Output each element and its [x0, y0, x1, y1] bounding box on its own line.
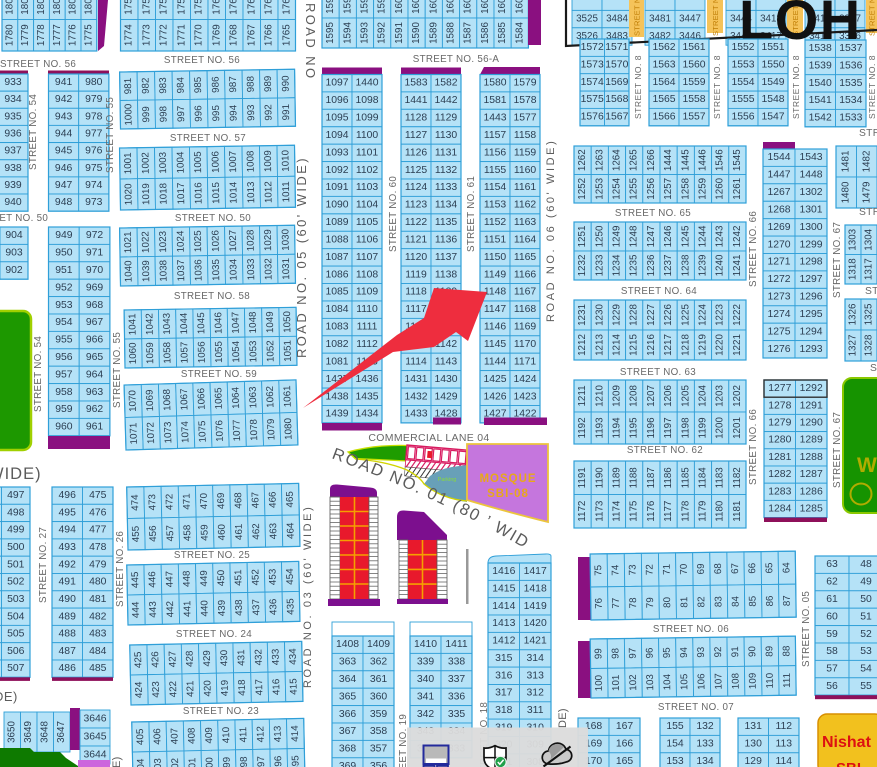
svg-text:1077: 1077 — [231, 419, 243, 441]
svg-text:1599: 1599 — [377, 0, 388, 14]
svg-text:1563: 1563 — [652, 60, 675, 71]
svg-text:933: 933 — [4, 77, 22, 88]
svg-text:314: 314 — [527, 653, 545, 664]
svg-text:1410: 1410 — [414, 639, 437, 650]
svg-text:1233: 1233 — [594, 254, 605, 276]
svg-text:1257: 1257 — [663, 178, 674, 200]
svg-text:1254: 1254 — [612, 177, 623, 199]
svg-text:1594: 1594 — [342, 22, 353, 44]
svg-text:1579: 1579 — [513, 78, 536, 89]
svg-text:85: 85 — [748, 595, 759, 607]
svg-text:1016: 1016 — [193, 182, 204, 205]
svg-text:1197: 1197 — [663, 417, 674, 438]
svg-text:477: 477 — [89, 525, 107, 536]
svg-text:1444: 1444 — [663, 149, 674, 171]
svg-text:1416: 1416 — [492, 566, 515, 577]
svg-text:1591: 1591 — [394, 22, 405, 44]
svg-text:1184: 1184 — [698, 467, 709, 489]
svg-text:54: 54 — [860, 664, 872, 675]
svg-text:1258: 1258 — [680, 177, 691, 199]
svg-text:110: 110 — [765, 672, 776, 688]
svg-text:1014: 1014 — [228, 181, 239, 204]
svg-text:407: 407 — [169, 728, 180, 745]
svg-text:991: 991 — [281, 104, 292, 121]
svg-text:1011: 1011 — [281, 181, 292, 202]
svg-text:1300: 1300 — [799, 222, 822, 233]
svg-text:1217: 1217 — [663, 334, 674, 356]
svg-text:1161: 1161 — [514, 182, 537, 193]
svg-text:1586: 1586 — [480, 22, 491, 44]
svg-text:367: 367 — [339, 726, 357, 737]
svg-text:1003: 1003 — [158, 151, 169, 174]
svg-text:1058: 1058 — [162, 341, 173, 364]
svg-text:1024: 1024 — [175, 230, 186, 253]
svg-text:1559: 1559 — [682, 77, 705, 88]
svg-text:1079: 1079 — [266, 418, 278, 440]
svg-text:1482: 1482 — [861, 151, 872, 173]
svg-text:1774: 1774 — [124, 24, 135, 46]
svg-text:360: 360 — [370, 691, 388, 702]
svg-text:1777: 1777 — [52, 24, 63, 46]
svg-text:1078: 1078 — [249, 418, 261, 441]
svg-text:3484: 3484 — [606, 14, 628, 25]
svg-text:361: 361 — [370, 674, 388, 685]
svg-text:1442: 1442 — [434, 95, 457, 106]
svg-text:955: 955 — [55, 335, 73, 346]
svg-text:443: 443 — [148, 601, 159, 618]
svg-text:1549: 1549 — [761, 77, 784, 88]
svg-text:1328: 1328 — [864, 334, 875, 356]
svg-text:1433: 1433 — [404, 409, 427, 420]
svg-text:457: 457 — [165, 525, 176, 542]
svg-text:1036: 1036 — [193, 259, 204, 282]
svg-text:1033: 1033 — [246, 258, 257, 281]
svg-text:130: 130 — [745, 739, 763, 750]
svg-text:410: 410 — [221, 726, 232, 743]
svg-text:318: 318 — [495, 705, 513, 716]
svg-text:1084: 1084 — [325, 304, 348, 315]
svg-text:1207: 1207 — [646, 385, 657, 407]
svg-text:1176: 1176 — [646, 500, 657, 522]
svg-text:1595: 1595 — [325, 22, 336, 44]
svg-text:423: 423 — [151, 681, 162, 698]
svg-text:1317: 1317 — [864, 258, 875, 280]
svg-text:448: 448 — [182, 570, 193, 587]
svg-text:1223: 1223 — [715, 304, 726, 326]
svg-text:1580: 1580 — [483, 78, 506, 89]
svg-text:502: 502 — [7, 577, 25, 588]
svg-text:1767: 1767 — [246, 24, 257, 46]
svg-text:1017: 1017 — [176, 183, 187, 205]
svg-text:1076: 1076 — [214, 419, 226, 442]
svg-text:1123: 1123 — [405, 200, 428, 211]
svg-text:339: 339 — [417, 657, 435, 668]
svg-text:99: 99 — [593, 648, 604, 659]
svg-text:487: 487 — [59, 646, 77, 657]
svg-text:1195: 1195 — [629, 417, 640, 439]
svg-text:1106: 1106 — [356, 235, 379, 246]
svg-text:1238: 1238 — [680, 254, 691, 276]
svg-text:1194: 1194 — [612, 417, 623, 439]
svg-text:1175: 1175 — [629, 500, 640, 522]
svg-text:414: 414 — [290, 725, 301, 742]
svg-text:399: 399 — [222, 757, 233, 767]
svg-text:1169: 1169 — [514, 322, 537, 333]
svg-text:479: 479 — [89, 559, 107, 570]
svg-text:76: 76 — [594, 597, 605, 609]
svg-text:1125: 1125 — [405, 165, 428, 176]
svg-text:1146: 1146 — [484, 322, 507, 333]
svg-text:STREET NO. 50: STREET NO. 50 — [0, 213, 48, 224]
svg-text:1069: 1069 — [145, 389, 157, 411]
svg-text:1200: 1200 — [715, 417, 726, 439]
svg-text:1229: 1229 — [612, 304, 623, 326]
svg-text:DE): DE) — [0, 689, 18, 704]
svg-text:1057: 1057 — [179, 342, 190, 364]
svg-text:1768: 1768 — [229, 24, 240, 46]
svg-text:102: 102 — [628, 674, 639, 691]
svg-text:962: 962 — [86, 404, 104, 415]
svg-text:1759: 1759 — [194, 0, 205, 15]
svg-text:1190: 1190 — [594, 467, 605, 489]
svg-text:1136: 1136 — [435, 235, 458, 246]
svg-text:1063: 1063 — [248, 386, 260, 409]
svg-text:1138: 1138 — [435, 269, 458, 280]
svg-text:486: 486 — [59, 663, 77, 674]
svg-text:1538: 1538 — [809, 43, 832, 54]
svg-text:495: 495 — [59, 508, 77, 519]
svg-text:103: 103 — [645, 674, 656, 691]
svg-text:1248: 1248 — [629, 225, 640, 247]
svg-text:493: 493 — [59, 542, 77, 553]
svg-text:1303: 1303 — [848, 228, 859, 250]
svg-text:1137: 1137 — [435, 252, 458, 263]
svg-text:1148: 1148 — [484, 287, 507, 298]
svg-text:1216: 1216 — [646, 334, 657, 356]
svg-text:STREET NO.: STREET NO. — [859, 128, 877, 139]
svg-text:483: 483 — [89, 629, 107, 640]
svg-text:1757: 1757 — [159, 0, 170, 15]
svg-text:1778: 1778 — [36, 24, 47, 46]
svg-text:490: 490 — [59, 594, 77, 605]
svg-text:1299: 1299 — [799, 239, 822, 250]
svg-text:1264: 1264 — [612, 149, 623, 171]
svg-text:1098: 1098 — [355, 95, 378, 106]
svg-text:1555: 1555 — [731, 94, 754, 105]
svg-text:1159: 1159 — [514, 147, 537, 158]
svg-text:1020: 1020 — [123, 183, 134, 206]
svg-text:342: 342 — [417, 709, 435, 720]
svg-text:953: 953 — [55, 300, 73, 311]
svg-text:444: 444 — [131, 601, 142, 618]
svg-text:1059: 1059 — [145, 342, 156, 364]
svg-text:1166: 1166 — [514, 269, 537, 280]
svg-text:1562: 1562 — [652, 42, 675, 53]
svg-text:87: 87 — [782, 595, 793, 606]
svg-text:359: 359 — [370, 709, 388, 720]
svg-text:362: 362 — [370, 657, 388, 668]
svg-text:1105: 1105 — [356, 217, 379, 228]
svg-text:506: 506 — [7, 646, 25, 657]
svg-text:1772: 1772 — [159, 24, 170, 46]
svg-text:358: 358 — [370, 726, 388, 737]
svg-text:1133: 1133 — [435, 182, 458, 193]
svg-text:1129: 1129 — [435, 113, 458, 124]
svg-text:1165: 1165 — [514, 252, 537, 263]
svg-text:369: 369 — [339, 761, 357, 767]
svg-text:316: 316 — [495, 670, 513, 681]
svg-text:1189: 1189 — [612, 467, 623, 488]
svg-text:368: 368 — [339, 744, 357, 755]
svg-text:1304: 1304 — [864, 228, 875, 250]
svg-text:60: 60 — [826, 611, 838, 622]
svg-text:971: 971 — [86, 248, 104, 259]
svg-text:1327: 1327 — [848, 335, 859, 357]
svg-text:1046: 1046 — [213, 311, 224, 334]
svg-text:489: 489 — [59, 611, 77, 622]
svg-text:1419: 1419 — [524, 601, 547, 612]
svg-text:1607: 1607 — [514, 0, 525, 14]
svg-text:968: 968 — [86, 300, 104, 311]
svg-text:988: 988 — [245, 75, 256, 92]
svg-text:1187: 1187 — [646, 467, 657, 488]
svg-text:1095: 1095 — [325, 113, 348, 124]
svg-text:1542: 1542 — [809, 113, 832, 124]
svg-text:1577: 1577 — [513, 113, 536, 124]
svg-text:98: 98 — [610, 647, 621, 659]
svg-text:1245: 1245 — [680, 225, 691, 247]
svg-text:1010: 1010 — [280, 149, 291, 172]
svg-text:466: 466 — [267, 491, 278, 508]
svg-text:453: 453 — [268, 568, 279, 585]
svg-text:59: 59 — [826, 629, 838, 640]
svg-text:1013: 1013 — [246, 181, 257, 204]
svg-text:STREET NO. 56: STREET NO. 56 — [0, 59, 76, 70]
svg-text:420: 420 — [202, 680, 213, 697]
svg-text:1068: 1068 — [162, 388, 174, 411]
svg-text:1023: 1023 — [158, 230, 169, 253]
svg-text:1049: 1049 — [265, 311, 276, 333]
svg-text:463: 463 — [268, 522, 279, 539]
svg-text:1249: 1249 — [612, 226, 623, 248]
svg-text:982: 982 — [140, 78, 151, 95]
svg-text:1152: 1152 — [484, 217, 507, 228]
svg-text:425: 425 — [133, 651, 144, 668]
svg-text:COMMERCIAL LANE 04: COMMERCIAL LANE 04 — [368, 432, 489, 444]
svg-text:1040: 1040 — [123, 260, 134, 283]
svg-text:165: 165 — [616, 756, 634, 767]
svg-text:1226: 1226 — [663, 304, 674, 326]
svg-text:1780: 1780 — [4, 24, 15, 46]
svg-text:80: 80 — [662, 596, 673, 608]
svg-text:1047: 1047 — [230, 312, 241, 334]
svg-text:1253: 1253 — [594, 177, 605, 199]
svg-text:504: 504 — [7, 611, 25, 622]
svg-text:976: 976 — [85, 146, 103, 157]
svg-text:1280: 1280 — [768, 435, 791, 446]
svg-text:1282: 1282 — [768, 469, 791, 480]
svg-text:1260: 1260 — [715, 177, 726, 199]
svg-text:1120: 1120 — [405, 252, 428, 263]
svg-text:1066: 1066 — [196, 387, 208, 410]
svg-text:436: 436 — [268, 598, 279, 615]
svg-text:959: 959 — [55, 404, 73, 415]
svg-text:1284: 1284 — [768, 504, 791, 515]
svg-text:404: 404 — [136, 758, 147, 767]
svg-text:1039: 1039 — [141, 260, 152, 282]
svg-text:1275: 1275 — [767, 326, 790, 337]
svg-text:1019: 1019 — [141, 183, 152, 205]
svg-text:1168: 1168 — [514, 304, 537, 315]
svg-text:422: 422 — [168, 681, 179, 698]
svg-text:1171: 1171 — [514, 356, 537, 367]
svg-text:STREET NO. 8: STREET NO. 8 — [867, 55, 877, 119]
svg-text:987: 987 — [228, 76, 239, 93]
svg-text:1135: 1135 — [435, 217, 458, 228]
svg-text:111: 111 — [782, 673, 793, 688]
svg-text:E): E) — [111, 756, 123, 767]
svg-text:74: 74 — [610, 564, 621, 576]
svg-text:938: 938 — [4, 163, 22, 174]
svg-text:1236: 1236 — [646, 254, 657, 276]
svg-text:1543: 1543 — [799, 152, 822, 163]
svg-text:496: 496 — [59, 490, 77, 501]
svg-text:1539: 1539 — [809, 61, 832, 72]
svg-text:112: 112 — [776, 721, 793, 732]
svg-text:975: 975 — [85, 163, 103, 174]
svg-text:944: 944 — [55, 129, 73, 140]
svg-text:62: 62 — [826, 577, 838, 588]
svg-text:1242: 1242 — [732, 226, 743, 248]
svg-text:1541: 1541 — [809, 95, 832, 106]
svg-text:1070: 1070 — [127, 389, 139, 412]
svg-text:940: 940 — [4, 197, 22, 208]
svg-text:1592: 1592 — [377, 22, 388, 44]
svg-text:155: 155 — [666, 721, 684, 732]
svg-text:442: 442 — [165, 601, 176, 618]
svg-text:974: 974 — [85, 180, 103, 191]
svg-text:72: 72 — [645, 564, 656, 575]
svg-text:1124: 1124 — [405, 182, 428, 193]
svg-text:473: 473 — [147, 493, 158, 510]
svg-text:STREET: STREET — [865, 286, 877, 297]
svg-text:454: 454 — [285, 568, 296, 585]
svg-text:1045: 1045 — [196, 312, 207, 335]
svg-text:966: 966 — [86, 335, 104, 346]
svg-text:357: 357 — [370, 744, 388, 755]
svg-text:1762: 1762 — [246, 0, 257, 15]
svg-text:1568: 1568 — [605, 94, 628, 105]
svg-text:1041: 1041 — [127, 313, 138, 335]
svg-text:1074: 1074 — [180, 420, 192, 443]
svg-text:945: 945 — [55, 146, 73, 157]
svg-text:88: 88 — [781, 645, 792, 657]
svg-text:465: 465 — [285, 491, 296, 508]
svg-text:1211: 1211 — [577, 385, 588, 406]
svg-text:132: 132 — [696, 721, 714, 732]
svg-text:STREET NO. 65: STREET NO. 65 — [615, 208, 691, 219]
svg-text:993: 993 — [246, 104, 257, 121]
svg-text:1552: 1552 — [731, 42, 754, 53]
svg-text:941: 941 — [55, 77, 73, 88]
svg-text:1117: 1117 — [405, 304, 427, 315]
svg-text:1005: 1005 — [193, 151, 204, 174]
svg-text:952: 952 — [55, 282, 73, 293]
svg-text:1156: 1156 — [484, 147, 507, 158]
svg-text:1291: 1291 — [800, 400, 823, 411]
svg-text:1201: 1201 — [732, 417, 743, 439]
svg-text:1535: 1535 — [839, 78, 862, 89]
svg-text:485: 485 — [89, 663, 107, 674]
svg-text:STREET NO. 23: STREET NO. 23 — [183, 706, 259, 717]
svg-text:3644: 3644 — [83, 750, 106, 761]
svg-text:1561: 1561 — [682, 42, 705, 53]
svg-text:1018: 1018 — [158, 182, 169, 205]
svg-text:1121: 1121 — [405, 235, 428, 246]
svg-text:104: 104 — [662, 673, 673, 690]
svg-text:1090: 1090 — [325, 200, 348, 211]
svg-text:1424: 1424 — [513, 374, 536, 385]
svg-text:1158: 1158 — [514, 130, 537, 141]
svg-text:1436: 1436 — [355, 374, 378, 385]
svg-text:1764: 1764 — [281, 0, 292, 15]
svg-text:1413: 1413 — [492, 618, 515, 629]
svg-text:1218: 1218 — [680, 334, 691, 356]
svg-text:133: 133 — [696, 739, 714, 750]
svg-text:1107: 1107 — [356, 252, 379, 263]
svg-text:1533: 1533 — [839, 113, 862, 124]
svg-text:1163: 1163 — [514, 217, 537, 228]
svg-text:1231: 1231 — [577, 304, 588, 326]
svg-text:1122: 1122 — [405, 217, 428, 228]
svg-text:1602: 1602 — [428, 0, 439, 14]
svg-text:1239: 1239 — [698, 255, 709, 277]
svg-text:947: 947 — [55, 180, 73, 191]
svg-text:167: 167 — [616, 721, 634, 732]
svg-text:1589: 1589 — [428, 22, 439, 44]
svg-text:1267: 1267 — [767, 187, 790, 198]
svg-text:1287: 1287 — [800, 469, 823, 480]
svg-text:1247: 1247 — [646, 226, 657, 248]
svg-text:1297: 1297 — [799, 274, 822, 285]
svg-text:3647: 3647 — [56, 721, 67, 743]
svg-text:1061: 1061 — [282, 385, 294, 407]
svg-text:1031: 1031 — [281, 258, 292, 280]
svg-text:1438: 1438 — [325, 391, 348, 402]
svg-text:356: 356 — [370, 761, 388, 767]
svg-text:1193: 1193 — [594, 417, 605, 439]
svg-text:408: 408 — [187, 727, 198, 744]
svg-text:1080: 1080 — [283, 417, 295, 440]
svg-text:1104: 1104 — [356, 200, 379, 211]
svg-text:1220: 1220 — [715, 334, 726, 356]
svg-text:STREET NO. 50: STREET NO. 50 — [175, 213, 251, 224]
svg-text:1164: 1164 — [514, 235, 537, 246]
svg-text:1131: 1131 — [435, 147, 458, 158]
svg-text:1603: 1603 — [446, 0, 457, 14]
svg-text:101: 101 — [611, 675, 622, 692]
svg-text:1065: 1065 — [213, 387, 225, 410]
svg-text:1445: 1445 — [680, 149, 691, 171]
svg-text:STREET NO. 8: STREET NO. 8 — [633, 55, 643, 119]
svg-text:474: 474 — [130, 494, 141, 511]
svg-text:1173: 1173 — [594, 500, 605, 522]
svg-text:1761: 1761 — [229, 0, 240, 15]
svg-text:471: 471 — [182, 493, 193, 510]
svg-text:1585: 1585 — [497, 22, 508, 44]
svg-text:1261: 1261 — [732, 178, 743, 200]
svg-text:1232: 1232 — [577, 255, 588, 277]
